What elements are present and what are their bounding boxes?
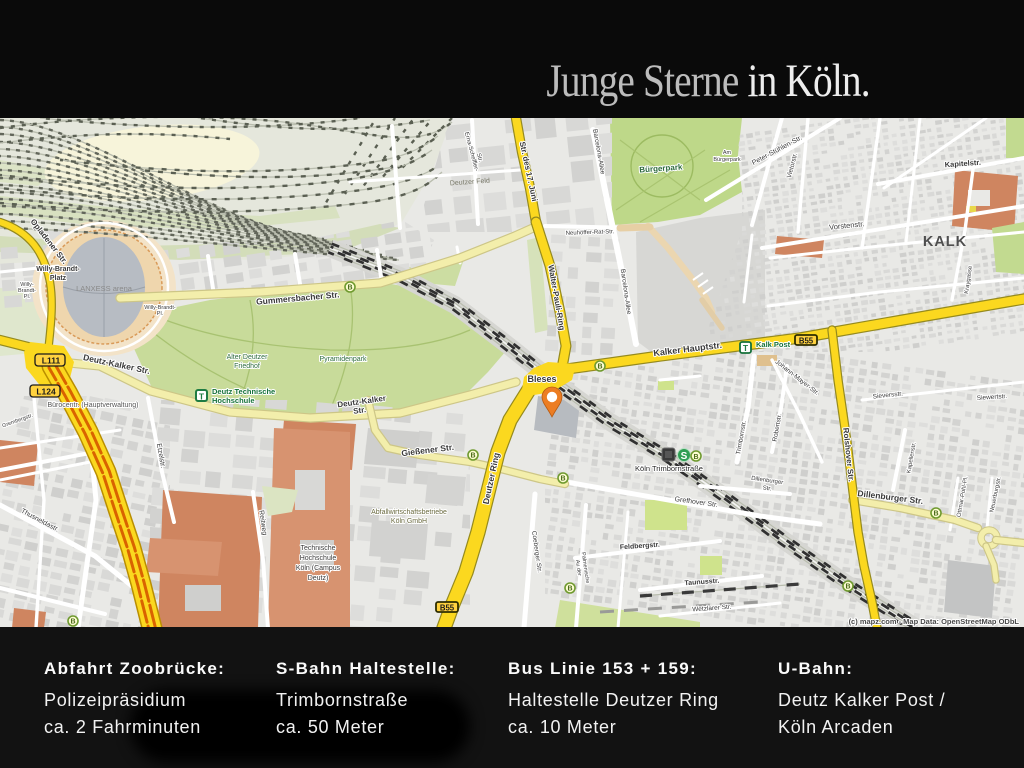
svg-text:Köln (Campus: Köln (Campus xyxy=(296,565,341,572)
svg-text:B55: B55 xyxy=(799,337,814,346)
svg-text:Willy-Brandt-: Willy-Brandt- xyxy=(36,266,80,273)
svg-text:LANXESS arena: LANXESS arena xyxy=(76,284,133,293)
svg-text:Deutz): Deutz) xyxy=(308,575,329,582)
svg-text:Bürocentr. (Hauptverwaltung): Bürocentr. (Hauptverwaltung) xyxy=(47,402,138,409)
svg-text:S: S xyxy=(681,451,688,462)
svg-text:KALK: KALK xyxy=(923,234,967,250)
svg-text:Hochschule: Hochschule xyxy=(300,555,337,562)
svg-text:Kalk Post: Kalk Post xyxy=(756,340,791,349)
svg-text:Pl.: Pl. xyxy=(24,294,31,300)
svg-text:Am: Am xyxy=(723,150,732,156)
svg-text:L111: L111 xyxy=(42,356,61,366)
svg-text:B: B xyxy=(845,584,850,591)
svg-text:B: B xyxy=(597,364,602,371)
svg-text:T: T xyxy=(199,392,205,402)
svg-text:Bleses: Bleses xyxy=(527,374,556,384)
svg-text:B: B xyxy=(560,476,565,483)
svg-text:Alter Deutzer: Alter Deutzer xyxy=(227,354,269,361)
svg-text:(c) mapz.com - Map Data: OpenS: (c) mapz.com - Map Data: OpenStreetMap O… xyxy=(849,617,1020,626)
svg-text:Pyramidenpark: Pyramidenpark xyxy=(319,356,367,363)
svg-text:B: B xyxy=(70,619,75,626)
svg-text:Str.: Str. xyxy=(353,405,367,416)
svg-text:Friedhof: Friedhof xyxy=(234,363,260,370)
svg-text:Platz: Platz xyxy=(50,275,67,282)
svg-text:Technische: Technische xyxy=(300,545,335,552)
svg-text:B: B xyxy=(567,586,572,593)
svg-text:Hochschule: Hochschule xyxy=(212,396,255,405)
svg-text:B: B xyxy=(933,511,938,518)
svg-text:T: T xyxy=(743,343,749,353)
svg-text:Köln GmbH: Köln GmbH xyxy=(391,518,427,525)
svg-text:B: B xyxy=(693,454,698,461)
svg-text:Pl.: Pl. xyxy=(157,311,164,317)
svg-text:L124: L124 xyxy=(36,387,56,397)
svg-text:Abfallwirtschaftsbetriebe: Abfallwirtschaftsbetriebe xyxy=(371,509,447,516)
svg-text:B: B xyxy=(347,285,352,292)
svg-text:B: B xyxy=(470,453,475,460)
svg-text:B55: B55 xyxy=(440,604,455,613)
svg-text:Köln Trimbornstraße: Köln Trimbornstraße xyxy=(635,464,703,473)
svg-text:Deutz Technische: Deutz Technische xyxy=(212,387,275,396)
svg-text:Bürgerpark: Bürgerpark xyxy=(713,157,740,163)
